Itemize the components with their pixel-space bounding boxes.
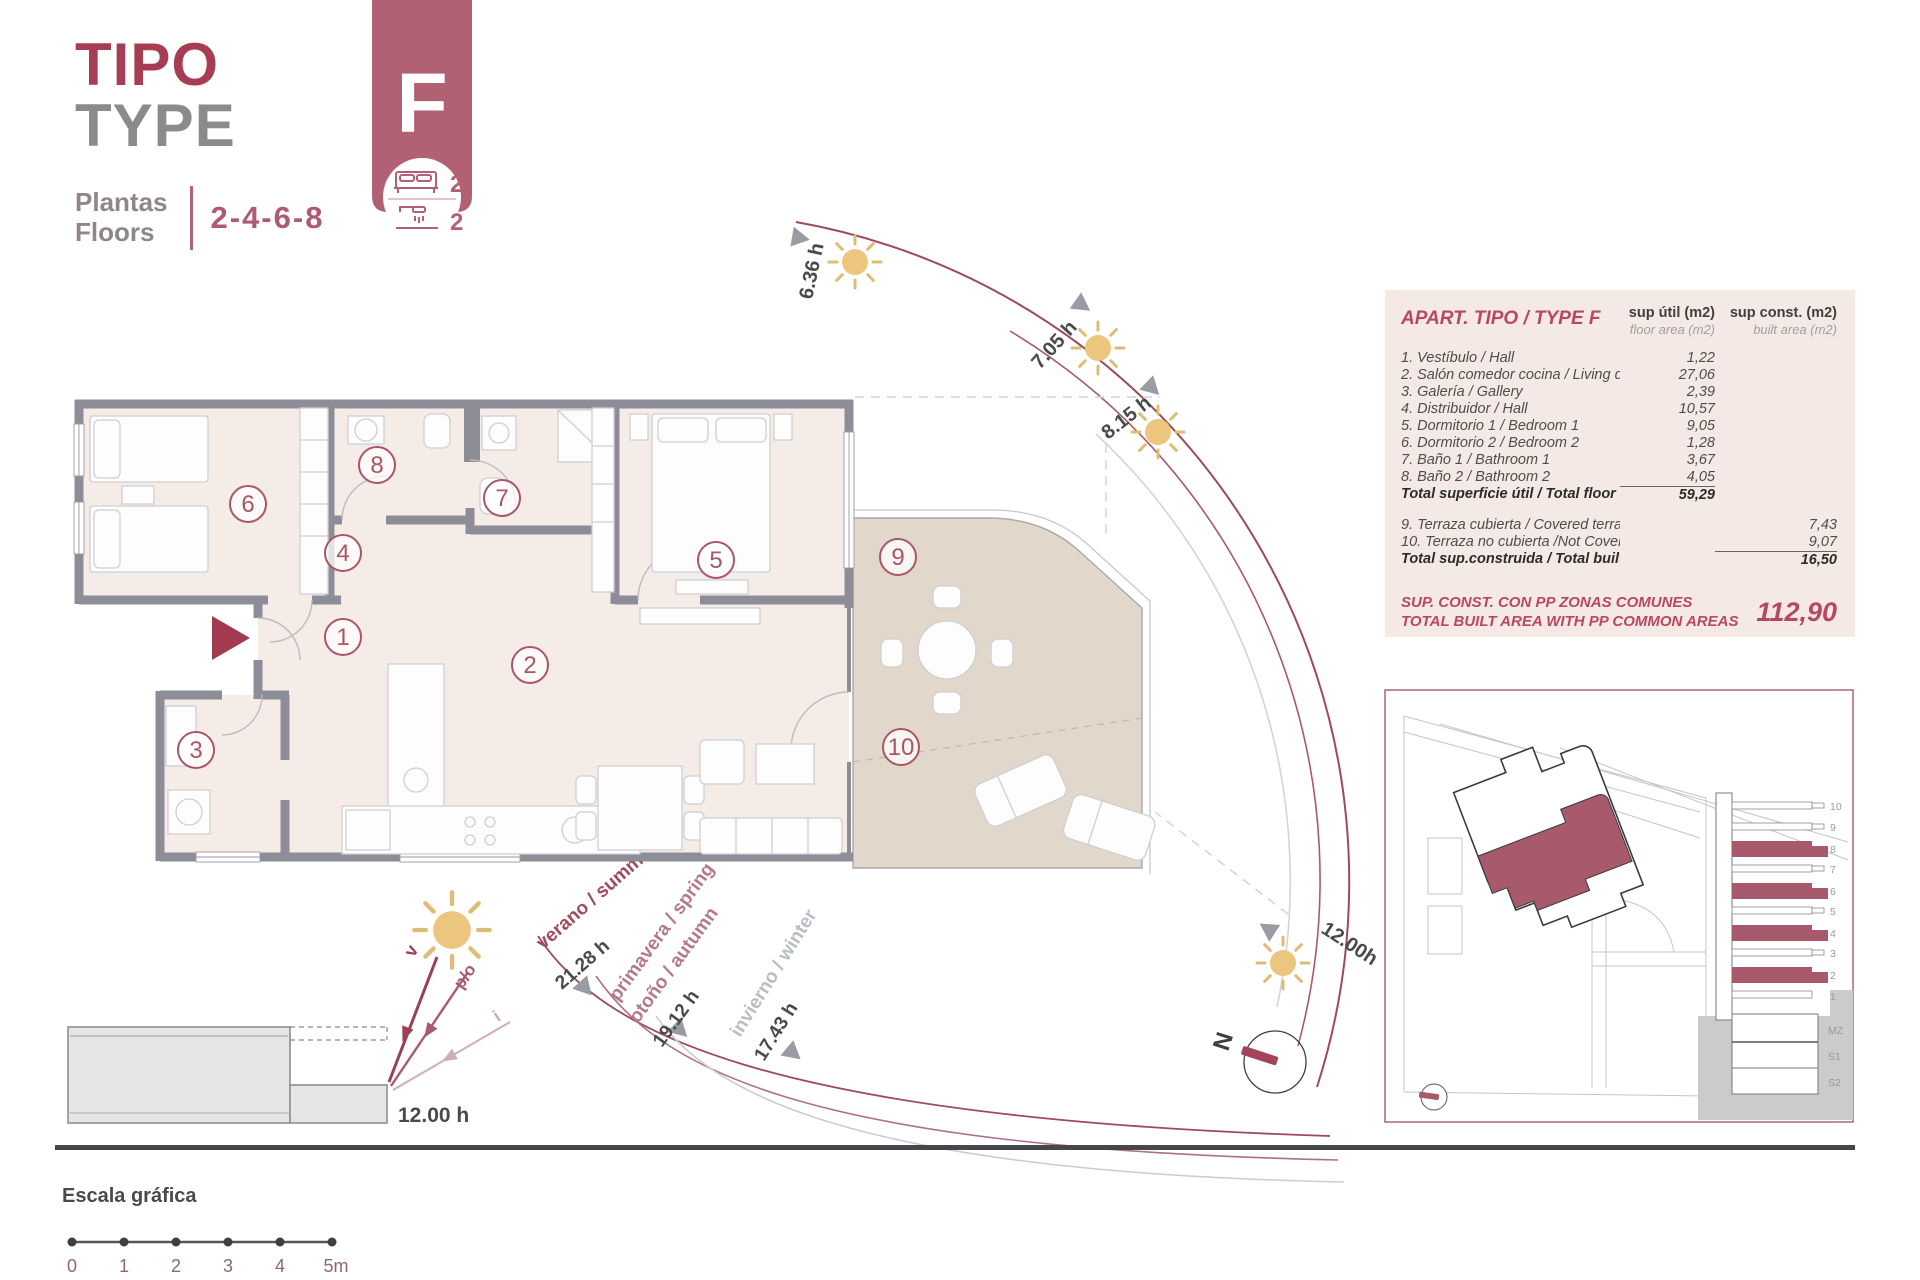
time-sunrise: 6.36 h	[795, 241, 828, 301]
row-label: 7. Baño 1 / Bathroom 1	[1401, 452, 1620, 469]
room-number-label: 2	[523, 652, 536, 679]
row-label: Total sup.construida / Total built area	[1401, 551, 1620, 569]
time-noon: 12.00h	[1317, 918, 1381, 970]
table-row: 1. Vestíbulo / Hall1,22	[1401, 350, 1837, 367]
floor-label: 4	[1830, 928, 1836, 940]
room-number-label: 1	[336, 624, 349, 651]
area-table-title: APART. TIPO / TYPE F	[1401, 305, 1615, 330]
badge-letter: F	[396, 56, 447, 150]
section-label-v: v	[400, 942, 422, 960]
divider	[190, 186, 193, 250]
room-number-10: 10	[883, 729, 919, 765]
entrance-arrow	[212, 616, 250, 660]
col-const-es: sup const. (m2)	[1715, 305, 1837, 322]
floors-label-en: Floors	[75, 218, 168, 248]
section-label-i: i	[489, 1007, 504, 1025]
row-label: 1. Vestíbulo / Hall	[1401, 350, 1620, 367]
row-label: 6. Dormitorio 2 / Bedroom 2	[1401, 435, 1620, 452]
room-number-4: 4	[325, 535, 361, 571]
compass-n-label: N	[1208, 1029, 1239, 1054]
grand-total-label-en: TOTAL BUILT AREA WITH PP COMMON AREAS	[1401, 612, 1756, 631]
table-row: 2. Salón comedor cocina / Living dinning…	[1401, 367, 1837, 384]
table-row: 7. Baño 1 / Bathroom 13,67	[1401, 452, 1837, 469]
room-number-label: 6	[241, 491, 254, 518]
scale-tick: 2	[171, 1256, 181, 1276]
total-floor-row: Total superficie útil / Total floor area…	[1401, 486, 1837, 504]
col-util-es: sup útil (m2)	[1615, 305, 1715, 322]
floor-label: 7	[1830, 864, 1836, 876]
row-value: 1,22	[1620, 350, 1715, 367]
grand-total: SUP. CONST. CON PP ZONAS COMUNES TOTAL B…	[1401, 593, 1837, 631]
total-built-row: Total sup.construida / Total built area1…	[1401, 551, 1837, 569]
floor-label: 2	[1830, 970, 1836, 982]
floor-label: 5	[1830, 906, 1836, 918]
table-row: 5. Dormitorio 1 / Bedroom 19,05	[1401, 418, 1837, 435]
room-number-6: 6	[230, 486, 266, 522]
room-number-2: 2	[512, 647, 548, 683]
area-table-rows: 1. Vestíbulo / Hall1,22 2. Salón comedor…	[1401, 350, 1837, 569]
room-number-1: 1	[325, 619, 361, 655]
compass-needle	[1241, 1046, 1279, 1066]
floor-label: 9	[1830, 822, 1836, 834]
room-number-8: 8	[359, 447, 395, 483]
row-value: 9,05	[1620, 418, 1715, 435]
scale-tick: 4	[275, 1256, 285, 1276]
section-label-po: p/o	[450, 961, 480, 993]
grand-total-value: 112,90	[1756, 597, 1837, 628]
table-row: 10. Terraza no cubierta /Not Covered ter…	[1401, 534, 1837, 551]
floor-label: 3	[1830, 948, 1836, 960]
room-number-7: 7	[484, 480, 520, 516]
scale-tick: 5m	[323, 1256, 348, 1276]
floor-label: 10	[1830, 801, 1842, 813]
row-value: 16,50	[1715, 551, 1837, 569]
table-row: 8. Baño 2 / Bathroom 24,05	[1401, 469, 1837, 486]
room-number-label: 3	[189, 737, 202, 764]
row-value: 4,05	[1620, 469, 1715, 486]
row-value: 3,67	[1620, 452, 1715, 469]
scale-tick: 3	[223, 1256, 233, 1276]
scale-bar-title: Escala gráfica	[62, 1185, 197, 1207]
floor-plan: 1 2 3 4 5 6 7 8 9 10	[74, 400, 1157, 874]
floor-label: 8	[1830, 844, 1836, 856]
floor-label: 6	[1830, 886, 1836, 898]
table-row: 6. Dormitorio 2 / Bedroom 21,28	[1401, 435, 1837, 452]
section-diagram: v p/o i 12.00 h	[68, 892, 510, 1127]
row-value: 2,39	[1620, 384, 1715, 401]
badge-bedrooms-count: 2	[450, 171, 463, 198]
col-header-floor-area: sup útil (m2) floor area (m2)	[1615, 305, 1715, 337]
page-title-es: TIPO	[75, 34, 324, 95]
compass: N	[1208, 1029, 1306, 1093]
floor-label: S1	[1828, 1051, 1841, 1063]
row-label: 5. Dormitorio 1 / Bedroom 1	[1401, 418, 1620, 435]
room-number-label: 8	[370, 452, 383, 479]
scale-tick: 1	[119, 1256, 129, 1276]
floors-value: 2-4-6-8	[211, 200, 325, 236]
room-number-5: 5	[698, 542, 734, 578]
scale-tick: 0	[67, 1256, 77, 1276]
row-label: 2. Salón comedor cocina / Living dinning…	[1401, 367, 1620, 384]
room-number-label: 5	[709, 547, 722, 574]
sun-icon	[1257, 937, 1309, 989]
type-badge: F 2 2	[372, 0, 472, 236]
row-label: 9. Terraza cubierta / Covered terrace	[1401, 517, 1620, 534]
row-value: 9,07	[1715, 534, 1837, 551]
scale-bar: Escala gráfica 0 1 2 3 4 5m	[62, 1185, 349, 1276]
page-title-en: TYPE	[75, 95, 324, 156]
floor-label: 1	[1830, 991, 1836, 1003]
table-row: 9. Terraza cubierta / Covered terrace7,4…	[1401, 517, 1837, 534]
duct-shaft	[464, 404, 480, 462]
floor-label: MZ	[1828, 1025, 1844, 1037]
room-number-label: 9	[891, 544, 904, 571]
time-morning: 7.05 h	[1027, 316, 1081, 373]
sun-icon	[829, 236, 881, 288]
floors-label-es: Plantas	[75, 188, 168, 218]
col-header-built-area: sup const. (m2) built area (m2)	[1715, 305, 1837, 337]
row-label: 3. Galería / Gallery	[1401, 384, 1620, 401]
row-label: Total superficie útil / Total floor area	[1401, 486, 1620, 504]
season-labels: verano / summer 21.28 h primavera / spri…	[533, 838, 822, 1065]
row-value: 10,57	[1620, 401, 1715, 418]
floors-row: Plantas Floors 2-4-6-8	[75, 186, 324, 250]
brochure-page: { "header": { "title_line1": "TIPO", "ti…	[0, 0, 1920, 1280]
badge-bathrooms-count: 2	[450, 209, 463, 236]
ground-line	[55, 1145, 1855, 1150]
grand-total-label-es: SUP. CONST. CON PP ZONAS COMUNES	[1401, 593, 1756, 612]
room-number-label: 7	[495, 485, 508, 512]
room-number-9: 9	[880, 539, 916, 575]
table-row: 4. Distribuidor / Hall10,57	[1401, 401, 1837, 418]
area-table-header: APART. TIPO / TYPE F sup útil (m2) floor…	[1401, 305, 1837, 337]
site-plan-box: 10 9 8 7 6 5 4 3 2 1 MZ S1 S2 N	[1385, 690, 1853, 1280]
col-util-en: floor area (m2)	[1615, 322, 1715, 337]
row-value: 1,28	[1620, 435, 1715, 452]
area-table: APART. TIPO / TYPE F sup útil (m2) floor…	[1385, 290, 1855, 637]
row-value: 7,43	[1715, 517, 1837, 534]
room-number-label: 10	[888, 734, 915, 761]
room-number-label: 4	[336, 540, 349, 567]
sun-icon	[414, 892, 489, 967]
row-label: 4. Distribuidor / Hall	[1401, 401, 1620, 418]
table-row: 3. Galería / Gallery2,39	[1401, 384, 1837, 401]
room-number-3: 3	[178, 732, 214, 768]
row-label: 10. Terraza no cubierta /Not Covered ter…	[1401, 534, 1620, 551]
page-header: TIPO TYPE Plantas Floors 2-4-6-8	[75, 34, 324, 250]
row-value: 27,06	[1620, 367, 1715, 384]
scale-tick-labels: 0 1 2 3 4 5m	[67, 1256, 349, 1276]
row-value: 59,29	[1620, 486, 1715, 504]
col-const-en: built area (m2)	[1715, 322, 1837, 337]
section-noon-label: 12.00 h	[398, 1104, 469, 1127]
row-label: 8. Baño 2 / Bathroom 2	[1401, 469, 1620, 486]
floor-label: S2	[1828, 1077, 1841, 1089]
